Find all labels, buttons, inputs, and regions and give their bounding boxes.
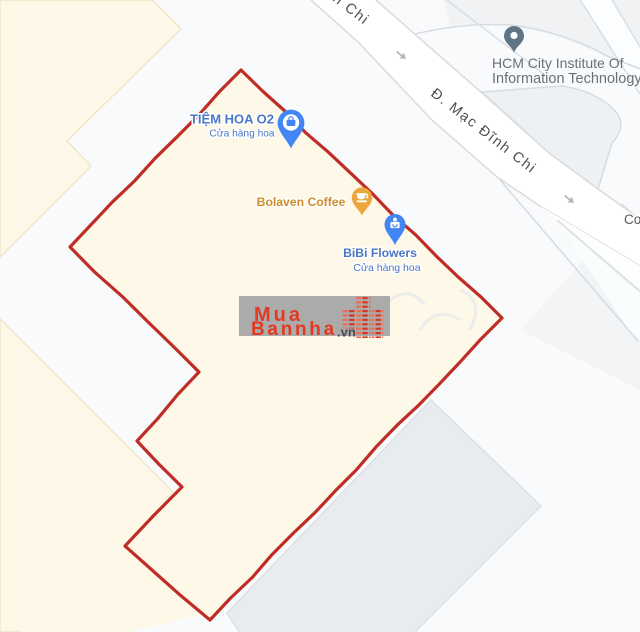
svg-text:BiBi Flowers: BiBi Flowers <box>343 246 417 260</box>
svg-text:Cửa hàng hoa: Cửa hàng hoa <box>353 262 420 274</box>
svg-text:Cửa hàng hoa: Cửa hàng hoa <box>209 128 274 140</box>
svg-text:Bannha: Bannha <box>251 319 337 340</box>
svg-text:HCM City Institute Of: HCM City Institute Of <box>492 55 624 71</box>
svg-text:Bolaven Coffee: Bolaven Coffee <box>257 195 346 209</box>
svg-text:Information Technology: Information Technology <box>492 71 640 87</box>
svg-text:Cơ: Cơ <box>624 212 640 227</box>
svg-text:TIỆM HOA O2: TIỆM HOA O2 <box>190 112 274 127</box>
